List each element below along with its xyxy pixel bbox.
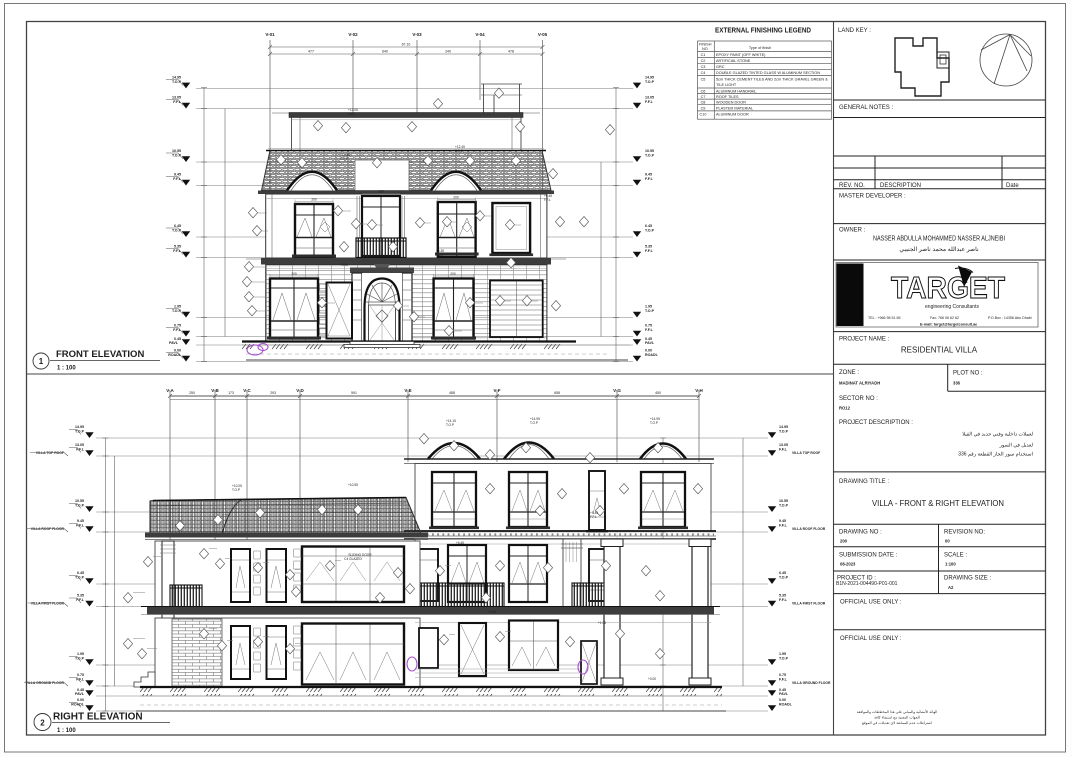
svg-text:T.O.P: T.O.P [645,154,655,158]
svg-text:C1: C1 [701,53,706,57]
svg-text:VILLA TOP ROOF: VILLA TOP ROOF [36,451,64,455]
svg-text:ALUMINUM HANDRAIL: ALUMINUM HANDRAIL [716,90,757,94]
svg-text:VILLA GROUND FLOOR: VILLA GROUND FLOOR [26,681,65,685]
svg-text:GRC: GRC [716,65,725,69]
svg-text:T.O.P: T.O.P [645,80,655,84]
svg-text:+10.55: +10.55 [348,483,358,487]
svg-text:VILLA - FRONT & RIGHT ELEVATIO: VILLA - FRONT & RIGHT ELEVATION [872,498,1004,508]
svg-text:9.45: 9.45 [779,519,786,523]
svg-text:PAVL: PAVL [779,692,789,696]
svg-text:T.O.P: T.O.P [779,504,789,508]
svg-text:VILLA TOP ROOF: VILLA TOP ROOF [792,451,820,455]
svg-text:0.00: 0.00 [645,349,652,353]
svg-text:173: 173 [228,391,234,395]
svg-text:Fax: 766 06 62 62: Fax: 766 06 62 62 [930,316,959,320]
svg-text:C10: C10 [700,113,707,117]
svg-text:14.95: 14.95 [779,425,788,429]
svg-text:T.O.P: T.O.P [779,430,789,434]
svg-text:336: 336 [953,381,961,386]
svg-text:6.45: 6.45 [645,224,652,228]
svg-text:T.O.P: T.O.P [436,253,444,257]
svg-text:DRAWING NO :: DRAWING NO : [839,530,882,536]
svg-text:ARTIFICIAL STONE: ARTIFICIAL STONE [716,59,751,63]
svg-text:MADINAT ALRIYADH: MADINAT ALRIYADH [839,381,880,386]
svg-text:C5: C5 [701,78,706,82]
svg-text:C6: C6 [701,90,706,94]
svg-text:DRAWING SIZE :: DRAWING SIZE : [944,576,991,582]
svg-text:591: 591 [351,391,357,395]
svg-text:TILE LIGHT: TILE LIGHT [716,83,737,87]
svg-text:293: 293 [270,391,276,395]
svg-text:00: 00 [945,539,950,544]
svg-text:V-H: V-H [695,388,703,393]
svg-text:V-02: V-02 [348,32,358,37]
svg-text:PAVL: PAVL [75,692,85,696]
svg-text:F.F.L: F.F.L [173,249,182,253]
svg-text:1.95: 1.95 [779,652,786,656]
svg-text:C7: C7 [701,95,706,99]
svg-text:لعملات داخلية وفني جديد في الف: لعملات داخلية وفني جديد في الفيلا [962,432,1033,438]
svg-text:OWNER :: OWNER : [839,228,866,234]
svg-text:T.O.P: T.O.P [779,576,789,580]
svg-text:T.O.P: T.O.P [779,657,789,661]
svg-text:10.55: 10.55 [172,149,181,153]
svg-text:استخدام سور الجار القطعة رقم 3: استخدام سور الجار القطعة رقم 336 [958,452,1033,458]
svg-text:488: 488 [449,391,455,395]
svg-text:478: 478 [508,50,514,54]
svg-text:0.75: 0.75 [174,324,181,328]
svg-text:PAVL: PAVL [645,341,655,345]
svg-text:RO12: RO12 [839,406,851,411]
svg-text:F.F.L: F.F.L [645,249,654,253]
svg-text:1.95: 1.95 [174,305,181,309]
svg-text:1.95: 1.95 [645,305,652,309]
svg-text:PAVL: PAVL [169,341,179,345]
svg-text:FRONT ELEVATION: FRONT ELEVATION [56,349,144,360]
svg-text:6.45: 6.45 [779,571,786,575]
svg-text:V-C: V-C [243,388,251,393]
svg-text:اشتراطات عدم الممانعة لاي تعدي: اشتراطات عدم الممانعة لاي تعديلات في الم… [862,720,932,725]
svg-text:0.75: 0.75 [645,324,652,328]
svg-text:C4: C4 [701,71,706,75]
svg-text:67.10: 67.10 [402,43,411,47]
svg-text:+5.95: +5.95 [340,263,348,267]
svg-text:477: 477 [308,50,314,54]
svg-text:VILLA ROOF FLOOR: VILLA ROOF FLOOR [792,527,826,531]
svg-text:6.45: 6.45 [174,224,181,228]
svg-text:V-D: V-D [296,388,304,393]
svg-text:F.F.L: F.F.L [779,678,788,682]
svg-text:REV. NO.: REV. NO. [839,183,865,189]
svg-text:VILLA FIRST FLOOR: VILLA FIRST FLOOR [31,602,65,606]
svg-text:F.F.L: F.F.L [173,328,182,332]
svg-text:VILLA GROUND FLOOR: VILLA GROUND FLOOR [792,681,831,685]
svg-text:2: 2 [40,719,45,728]
svg-text:+0.00: +0.00 [648,677,656,681]
svg-text:6.45: 6.45 [77,571,84,575]
svg-text:F.F.L: F.F.L [348,112,355,116]
svg-text:ROADL: ROADL [645,353,659,357]
svg-text:P.O.Box : 14356 Abu Dhabi: P.O.Box : 14356 Abu Dhabi [988,316,1032,320]
svg-text:658: 658 [554,391,560,395]
svg-text:14.95: 14.95 [172,76,181,80]
svg-text:0.00: 0.00 [77,698,84,702]
svg-text:10.55: 10.55 [779,499,788,503]
svg-text:V-E: V-E [404,388,411,393]
svg-text:GENERAL NOTES :: GENERAL NOTES : [839,105,893,111]
svg-text:LAND KEY :: LAND KEY : [838,28,871,34]
svg-text:5.35: 5.35 [174,245,181,249]
svg-text:F.F.L: F.F.L [645,328,654,332]
svg-text:TARGET: TARGET [891,270,1005,305]
svg-text:9.45: 9.45 [174,173,181,177]
svg-text:DRAWING TITLE :: DRAWING TITLE : [839,479,889,485]
svg-text:5.35: 5.35 [77,594,84,598]
svg-text:13.05: 13.05 [172,96,181,100]
svg-text:240: 240 [445,50,451,54]
svg-text:+6.45: +6.45 [456,541,464,545]
svg-text:0.75: 0.75 [779,673,786,677]
svg-text:+1.95: +1.95 [598,621,606,625]
svg-text:F.F.L: F.F.L [779,524,788,528]
svg-text:10.55: 10.55 [75,499,84,503]
svg-text:C8: C8 [701,101,706,105]
svg-text:Type of finish: Type of finish [749,46,771,50]
svg-text:engineering Consultants: engineering Consultants [925,304,979,310]
svg-text:200: 200 [453,196,459,200]
svg-text:PROJECT DESCRIPTION :: PROJECT DESCRIPTION : [839,420,913,426]
svg-text:5.35: 5.35 [779,594,786,598]
svg-text:0.75: 0.75 [77,673,84,677]
svg-text:RESIDENTIAL VILLA: RESIDENTIAL VILLA [901,346,978,355]
svg-text:V-F: V-F [493,388,500,393]
svg-text:C9: C9 [701,107,706,111]
svg-text:T.O.P: T.O.P [232,488,240,492]
svg-text:E-mail: target@targetconsult.a: E-mail: target@targetconsult.ae [920,323,977,327]
svg-text:9.45: 9.45 [77,519,84,523]
svg-text:VILLA FIRST FLOOR: VILLA FIRST FLOOR [792,602,826,606]
svg-text:DOUBLE GLAZED TINTED GLASS W A: DOUBLE GLAZED TINTED GLASS W ALUMINUM SE… [716,71,820,75]
svg-text:T.O.P: T.O.P [645,309,655,313]
svg-text:F.F.L: F.F.L [173,177,182,181]
svg-text:EXTERNAL FINISHING LEGEND: EXTERNAL FINISHING LEGEND [715,28,811,35]
svg-text:ROOF TILES: ROOF TILES [716,95,739,99]
svg-text:V-01: V-01 [265,32,275,37]
svg-text:V-G: V-G [613,388,621,393]
svg-text:5.35: 5.35 [645,245,652,249]
svg-text:REVISION NO:: REVISION NO: [944,530,985,536]
svg-text:ROADL: ROADL [71,703,85,707]
svg-text:F.F.L: F.F.L [590,515,597,519]
svg-text:1 : 100: 1 : 100 [57,366,76,372]
svg-text:V-04: V-04 [475,32,485,37]
svg-text:FINISH: FINISH [699,43,712,47]
svg-text:1:100: 1:100 [945,562,956,567]
svg-text:1 : 100: 1 : 100 [57,728,76,734]
svg-text:B1N-2021-004490-P01-001: B1N-2021-004490-P01-001 [836,581,898,587]
svg-text:SUBMISSION DATE :: SUBMISSION DATE : [839,553,898,559]
svg-text:200: 200 [291,272,297,276]
svg-text:ZONE :: ZONE : [839,370,859,376]
svg-text:250: 250 [189,391,195,395]
svg-text:TEL : +966 98 51 65: TEL : +966 98 51 65 [868,316,901,320]
svg-text:T.O.P: T.O.P [530,421,538,425]
svg-text:V-B: V-B [211,388,219,393]
svg-text:14.95: 14.95 [645,76,654,80]
svg-text:NASSER ABDULLA MOHAMMED NASSER: NASSER ABDULLA MOHAMMED NASSER ALJNEIBI [873,236,1005,243]
svg-text:SCALE :: SCALE : [944,553,967,559]
svg-text:1.95: 1.95 [77,652,84,656]
svg-text:NO: NO [702,47,708,51]
svg-text:V-A: V-A [166,388,174,393]
svg-text:T.O.P: T.O.P [455,149,463,153]
svg-text:0.00: 0.00 [174,349,181,353]
svg-text:T.O.P: T.O.P [340,157,348,161]
svg-text:F.F.L: F.F.L [173,100,182,104]
svg-text:C4 GLAZED: C4 GLAZED [344,557,362,561]
svg-text:SECTOR NO :: SECTOR NO : [839,396,878,402]
svg-text:13.05: 13.05 [779,443,788,447]
svg-text:F.F.L: F.F.L [779,598,788,602]
svg-text:الجهات المعنية مع استيفاء كافة: الجهات المعنية مع استيفاء كافة [874,715,920,720]
svg-text:200: 200 [311,198,317,202]
svg-text:F.F.L: F.F.L [779,448,788,452]
svg-text:DESCRIPTION: DESCRIPTION [880,183,921,189]
svg-text:0.00: 0.00 [779,698,786,702]
svg-text:T.O.P: T.O.P [645,229,655,233]
svg-text:EPOXY PAINT (OFF WHITE): EPOXY PAINT (OFF WHITE) [716,53,766,57]
svg-text:160: 160 [378,190,384,194]
svg-text:200: 200 [840,539,848,544]
svg-text:08-2023: 08-2023 [840,562,856,567]
svg-text:200: 200 [450,272,456,276]
svg-text:C2: C2 [701,59,706,63]
svg-text:ناصر عبدالله محمد ناصر الجنيبي: ناصر عبدالله محمد ناصر الجنيبي [899,246,979,253]
svg-text:A2: A2 [948,585,954,590]
svg-text:F.F.L: F.F.L [645,100,654,104]
svg-text:SLIDING DOOR: SLIDING DOOR [348,553,372,557]
svg-text:V-03: V-03 [412,32,422,37]
svg-text:PROJECT NAME :: PROJECT NAME : [839,337,890,343]
svg-text:9.45: 9.45 [645,173,652,177]
svg-text:OFFICIAL USE ONLY :: OFFICIAL USE ONLY : [840,636,902,642]
svg-text:13.05: 13.05 [645,96,654,100]
svg-text:T.O.P: T.O.P [650,421,658,425]
svg-text:5cm THICK CEMENT TILES AND 2cm: 5cm THICK CEMENT TILES AND 2cm THICK GRA… [716,78,828,82]
svg-text:640: 640 [382,50,388,54]
svg-text:1: 1 [39,357,44,366]
svg-text:13.05: 13.05 [75,443,84,447]
svg-text:WOODEN DOOR: WOODEN DOOR [716,101,746,105]
svg-text:450: 450 [655,391,661,395]
svg-text:F.F.L: F.F.L [645,177,654,181]
svg-text:Date: Date [1006,183,1019,189]
svg-text:F.F.L: F.F.L [544,198,551,202]
svg-text:لعديل في السور: لعديل في السور [999,443,1034,449]
svg-text:PLOT NO :: PLOT NO : [953,371,983,377]
svg-text:MASTER DEVELOPER :: MASTER DEVELOPER : [839,194,906,200]
svg-text:PLASTER MATERIAL: PLASTER MATERIAL [716,107,753,111]
svg-text:OFFICIAL USE ONLY :: OFFICIAL USE ONLY : [840,600,902,606]
svg-text:C3: C3 [701,65,706,69]
svg-text:VILLA ROOF FLOOR: VILLA ROOF FLOOR [31,527,65,531]
svg-text:14.95: 14.95 [75,425,84,429]
svg-text:ROADL: ROADL [779,703,793,707]
svg-text:10.55: 10.55 [645,149,654,153]
svg-text:RIGHT ELEVATION: RIGHT ELEVATION [53,712,143,723]
svg-text:+1.00: +1.00 [488,610,496,614]
svg-text:T.O.P: T.O.P [446,423,454,427]
svg-text:V-05: V-05 [538,32,548,37]
svg-text:ALUMINUM DOOR: ALUMINUM DOOR [716,113,749,117]
